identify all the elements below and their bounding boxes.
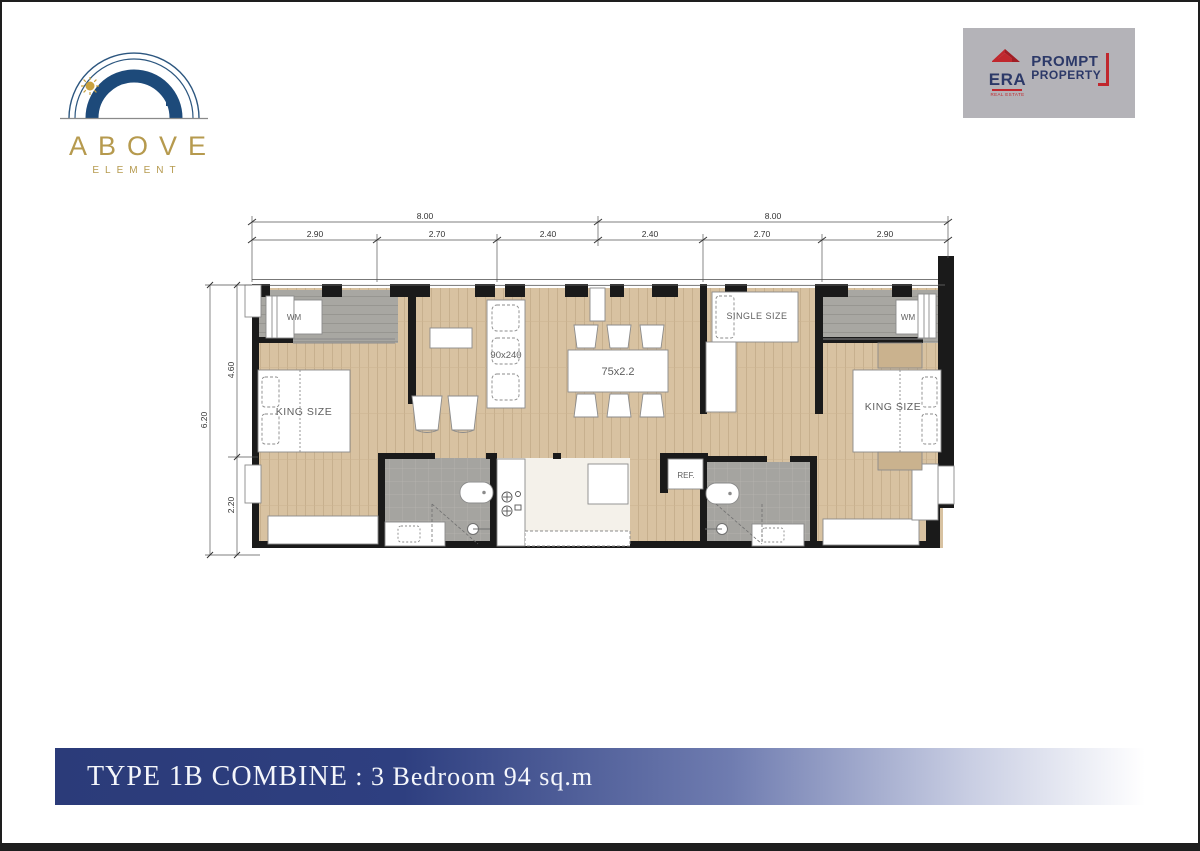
- armchair-2: [448, 396, 478, 433]
- closet-right: [912, 464, 938, 520]
- house-icon: [992, 49, 1022, 71]
- page: ABOVE ELEMENT ERA REAL ESTATE PROMPT PRO…: [0, 0, 1200, 851]
- type-subtitle: 3 Bedroom 94 sq.m: [371, 762, 593, 791]
- label-king-right: KING SIZE: [865, 401, 921, 413]
- nightstand-top: [878, 343, 922, 368]
- agency-line1: PROMPT: [1031, 55, 1101, 69]
- label-dining: 75x2.2: [601, 366, 634, 378]
- arch-logo-icon: [58, 36, 210, 124]
- sun-icon: [81, 77, 99, 95]
- coffee-table: [430, 328, 472, 348]
- wardrobe-left: [268, 516, 378, 544]
- svg-text:2.90: 2.90: [307, 229, 324, 239]
- agency-line2: PROPERTY: [1031, 69, 1101, 82]
- type-separator: :: [348, 762, 371, 791]
- brand-logo: ABOVE ELEMENT: [58, 36, 210, 176]
- brand-subname: ELEMENT: [58, 165, 210, 176]
- type-banner: TYPE 1B COMBINE : 3 Bedroom 94 sq.m: [55, 748, 1145, 805]
- agency-bracket: [1098, 53, 1109, 86]
- entry-door: [590, 288, 605, 321]
- svg-text:2.70: 2.70: [754, 229, 771, 239]
- label-single: SINGLE SIZE: [726, 311, 787, 321]
- label-sofa: 90x240: [490, 350, 521, 361]
- label-king-left: KING SIZE: [276, 406, 332, 418]
- agency-logo: ERA REAL ESTATE PROMPT PROPERTY: [963, 28, 1135, 118]
- agency-rule: [992, 89, 1022, 91]
- svg-text:8.00: 8.00: [765, 211, 782, 221]
- svg-text:2.40: 2.40: [642, 229, 659, 239]
- svg-text:6.20: 6.20: [199, 411, 209, 428]
- svg-text:2.20: 2.20: [226, 496, 236, 513]
- label-wm-left: WM: [287, 313, 302, 322]
- label-fridge: REF.: [677, 471, 694, 480]
- floor-plan: 8.00 8.00 2.90 2.70 2.40 2.40 2.70 2.90 …: [192, 198, 992, 578]
- svg-text:2.70: 2.70: [429, 229, 446, 239]
- type-banner-text: TYPE 1B COMBINE : 3 Bedroom 94 sq.m: [87, 761, 593, 793]
- svg-text:8.00: 8.00: [417, 211, 434, 221]
- label-wm-right: WM: [901, 313, 916, 322]
- frame-left: [0, 0, 2, 851]
- armchair-1: [412, 396, 442, 433]
- brand-name: ABOVE: [58, 131, 210, 162]
- svg-text:2.40: 2.40: [540, 229, 557, 239]
- frame-top: [0, 0, 1200, 2]
- svg-text:4.60: 4.60: [226, 361, 236, 378]
- svg-text:2.90: 2.90: [877, 229, 894, 239]
- wardrobe-right: [823, 519, 919, 545]
- agency-name: ERA: [989, 71, 1026, 88]
- type-title: TYPE 1B COMBINE: [87, 761, 348, 792]
- frame-bottom: [0, 843, 1200, 851]
- wardrobe-single: [706, 342, 736, 412]
- nightstand-bottom: [878, 452, 922, 470]
- agency-tagline: REAL ESTATE: [990, 92, 1024, 97]
